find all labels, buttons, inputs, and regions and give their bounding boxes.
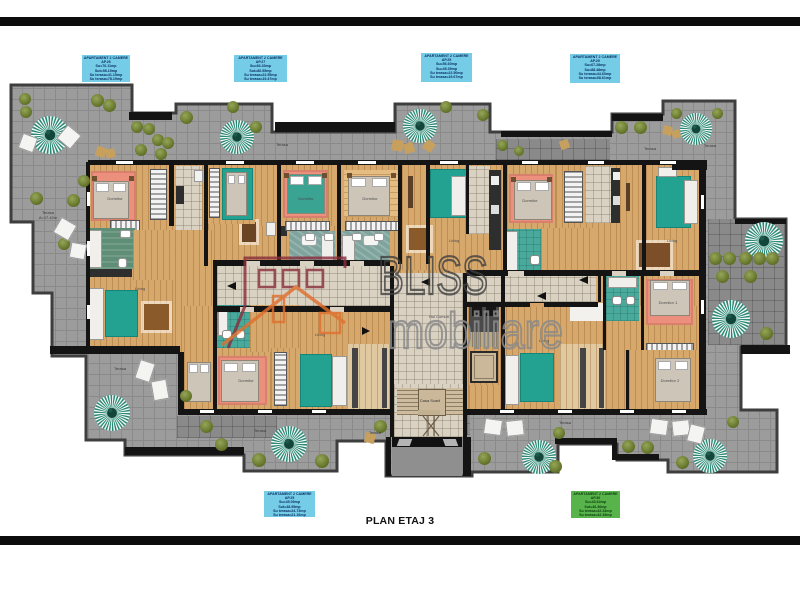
svg-text:BLISS: BLISS <box>378 246 488 306</box>
svg-text:mobiliare: mobiliare <box>388 303 563 359</box>
